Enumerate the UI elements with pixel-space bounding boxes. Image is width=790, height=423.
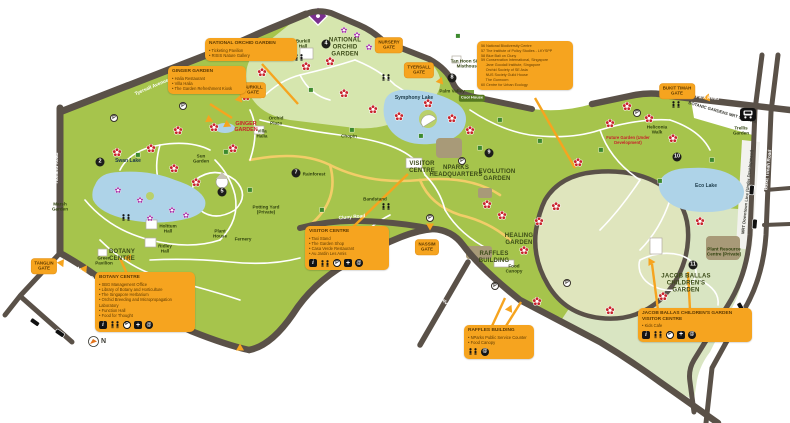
- callout-title: Ginger Garden: [172, 69, 242, 75]
- parking-icon: P: [110, 114, 118, 122]
- facility-icons-row: @: [468, 348, 530, 356]
- information-icon: i: [309, 259, 317, 267]
- feature-square-icon: [320, 208, 324, 212]
- poi-number-badge: 10: [673, 153, 682, 162]
- feature-square-icon: [478, 146, 482, 150]
- poi-number-badge: 2: [96, 158, 105, 167]
- entrance-arrow-icon: [649, 258, 656, 266]
- callout-visitor-centre: Visitor Centre• Taxi Stand• The Garden S…: [305, 226, 389, 270]
- feature-square-icon: [419, 134, 423, 138]
- callout-bullet: • Food Canopy: [468, 340, 530, 345]
- parking-icon: P: [491, 282, 499, 290]
- entrance-arrow-icon: [702, 93, 710, 102]
- cafe-icon: @: [145, 321, 153, 329]
- parking-icon: P: [458, 157, 466, 165]
- callout-title: Botany Centre: [99, 275, 191, 281]
- parking-icon: P: [123, 321, 131, 329]
- mrt-station-icon: [740, 108, 756, 121]
- callout-title: Jacob Ballas Children's Garden Visitor C…: [642, 311, 748, 322]
- toilet-icon: [381, 197, 391, 215]
- gate-label-nursery-gate: NURSERY GATE: [375, 38, 402, 53]
- parking-icon: P: [666, 331, 674, 339]
- callout-ginger-garden: Ginger Garden• Halia Restaurant• Villa H…: [168, 66, 246, 94]
- callout-raffles-building: Raffles Building• NParks Public Service …: [464, 325, 534, 359]
- poi-number-badge: 11: [689, 261, 698, 270]
- callout-title: Raffles Building: [468, 328, 530, 334]
- poi-number-badge: 9: [485, 149, 494, 158]
- callout-jacob-ballas-visitor-centre: Jacob Ballas Children's Garden Visitor C…: [638, 308, 752, 342]
- feature-square-icon: [248, 188, 252, 192]
- compass-icon: N: [88, 336, 106, 347]
- gate-label-tyersall-gate: TYERSALL GATE: [404, 63, 433, 78]
- feature-square-icon: [136, 153, 140, 157]
- compass-label: N: [101, 338, 106, 345]
- entrance-arrow-icon: [426, 224, 434, 231]
- poi-number-badge: 5: [218, 188, 227, 197]
- parking-icon: P: [633, 109, 641, 117]
- first-aid-icon: +: [134, 321, 142, 329]
- feature-square-icon: [538, 139, 542, 143]
- facility-icons-row: iP+@: [309, 259, 385, 267]
- information-icon: i: [642, 331, 650, 339]
- entrance-arrow-icon: [236, 344, 244, 351]
- feature-square-icon: [309, 88, 313, 92]
- information-icon: i: [99, 321, 107, 329]
- callout-bullet: • Food for Thought: [99, 313, 191, 318]
- callout-national-orchid-garden: National Orchid Garden• Ticketing Pavili…: [205, 38, 297, 61]
- parking-icon: P: [426, 214, 434, 222]
- feature-square-icon: [224, 150, 228, 154]
- gate-label-bukit-timah-gate: BUKIT TIMAH GATE: [660, 84, 695, 99]
- map-canvas: 2457891011PPPPPPP NATIONAL ORCHID GARDEN…: [0, 0, 790, 423]
- map-base-art: [0, 0, 790, 423]
- callout-botany-centre: Botany Centre• SBG Management Office• Li…: [95, 272, 195, 332]
- road-dalvey: [420, 262, 468, 345]
- callout-bullet: • Au Jardin Les Amis: [309, 251, 385, 256]
- gate-label-tanglin-gate: TANGLIN GATE: [31, 259, 56, 274]
- toilet-icon: [320, 260, 330, 268]
- callout-bullet: • The Garden Refreshment Kiosk: [172, 86, 242, 91]
- facility-icons-row: iP+@: [99, 321, 191, 329]
- toilet-icon: [468, 348, 478, 356]
- feature-square-icon: [710, 158, 714, 162]
- parking-icon: P: [333, 259, 341, 267]
- callout-bullet: • Kids Cafe: [642, 323, 748, 328]
- callout-bullet: • RISIS Nature Gallery: [209, 53, 293, 58]
- facility-icons-row: iP+@: [642, 331, 748, 339]
- toilet-icon: [653, 331, 663, 339]
- parking-icon: P: [563, 279, 571, 287]
- first-aid-icon: +: [677, 331, 685, 339]
- callout-bullet: • Orchid Breeding and Micropropagation L…: [99, 297, 191, 308]
- cafe-icon: @: [481, 348, 489, 356]
- cafe-icon: @: [688, 331, 696, 339]
- parking-icon: P: [179, 102, 187, 110]
- toilet-icon: [110, 321, 120, 329]
- feature-square-icon: [350, 128, 354, 132]
- poi-number-badge: 8: [448, 74, 457, 83]
- feature-square-icon: [599, 148, 603, 152]
- callout-title: Visitor Centre: [309, 229, 385, 235]
- legend-item: 60 Centre for Urban Ecology: [481, 83, 569, 88]
- toilet-icon: [121, 208, 131, 226]
- feature-square-icon: [456, 34, 460, 38]
- poi-number-badge: 7: [292, 169, 301, 178]
- first-aid-icon: +: [344, 259, 352, 267]
- feature-square-icon: [658, 179, 662, 183]
- cafe-icon: @: [355, 259, 363, 267]
- callout-building-legend: 56 National Biodiversity Centre57 The In…: [477, 41, 573, 90]
- feature-square-icon: [498, 118, 502, 122]
- gate-label-nassim-gate: NASSIM GATE: [415, 240, 438, 255]
- toilet-icon: [381, 68, 391, 86]
- poi-number-badge: 4: [322, 40, 331, 49]
- callout-title: National Orchid Garden: [209, 41, 293, 47]
